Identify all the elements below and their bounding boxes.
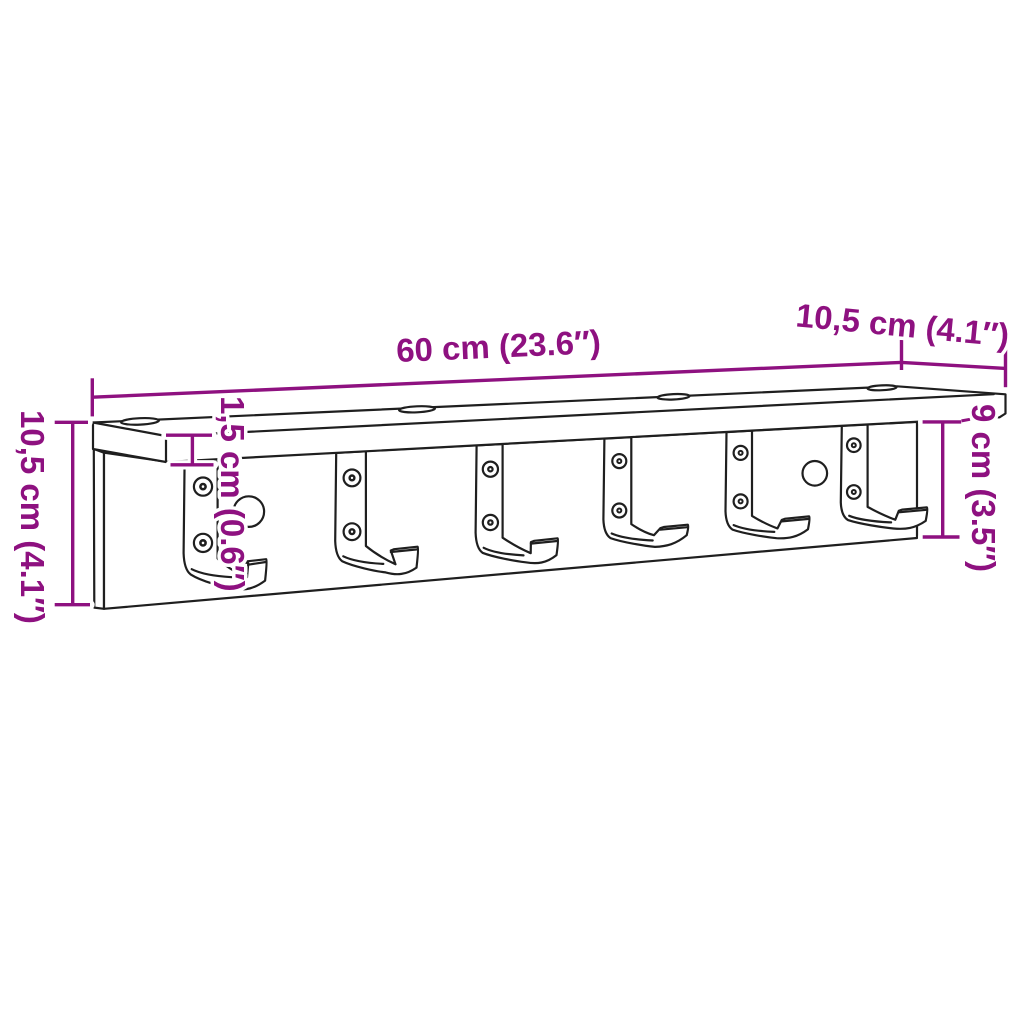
svg-text:9 cm (3.5″): 9 cm (3.5″): [965, 404, 1002, 572]
svg-text:1,5 cm (0.6″): 1,5 cm (0.6″): [214, 396, 251, 592]
svg-text:10,5 cm (4.1″): 10,5 cm (4.1″): [14, 410, 51, 624]
